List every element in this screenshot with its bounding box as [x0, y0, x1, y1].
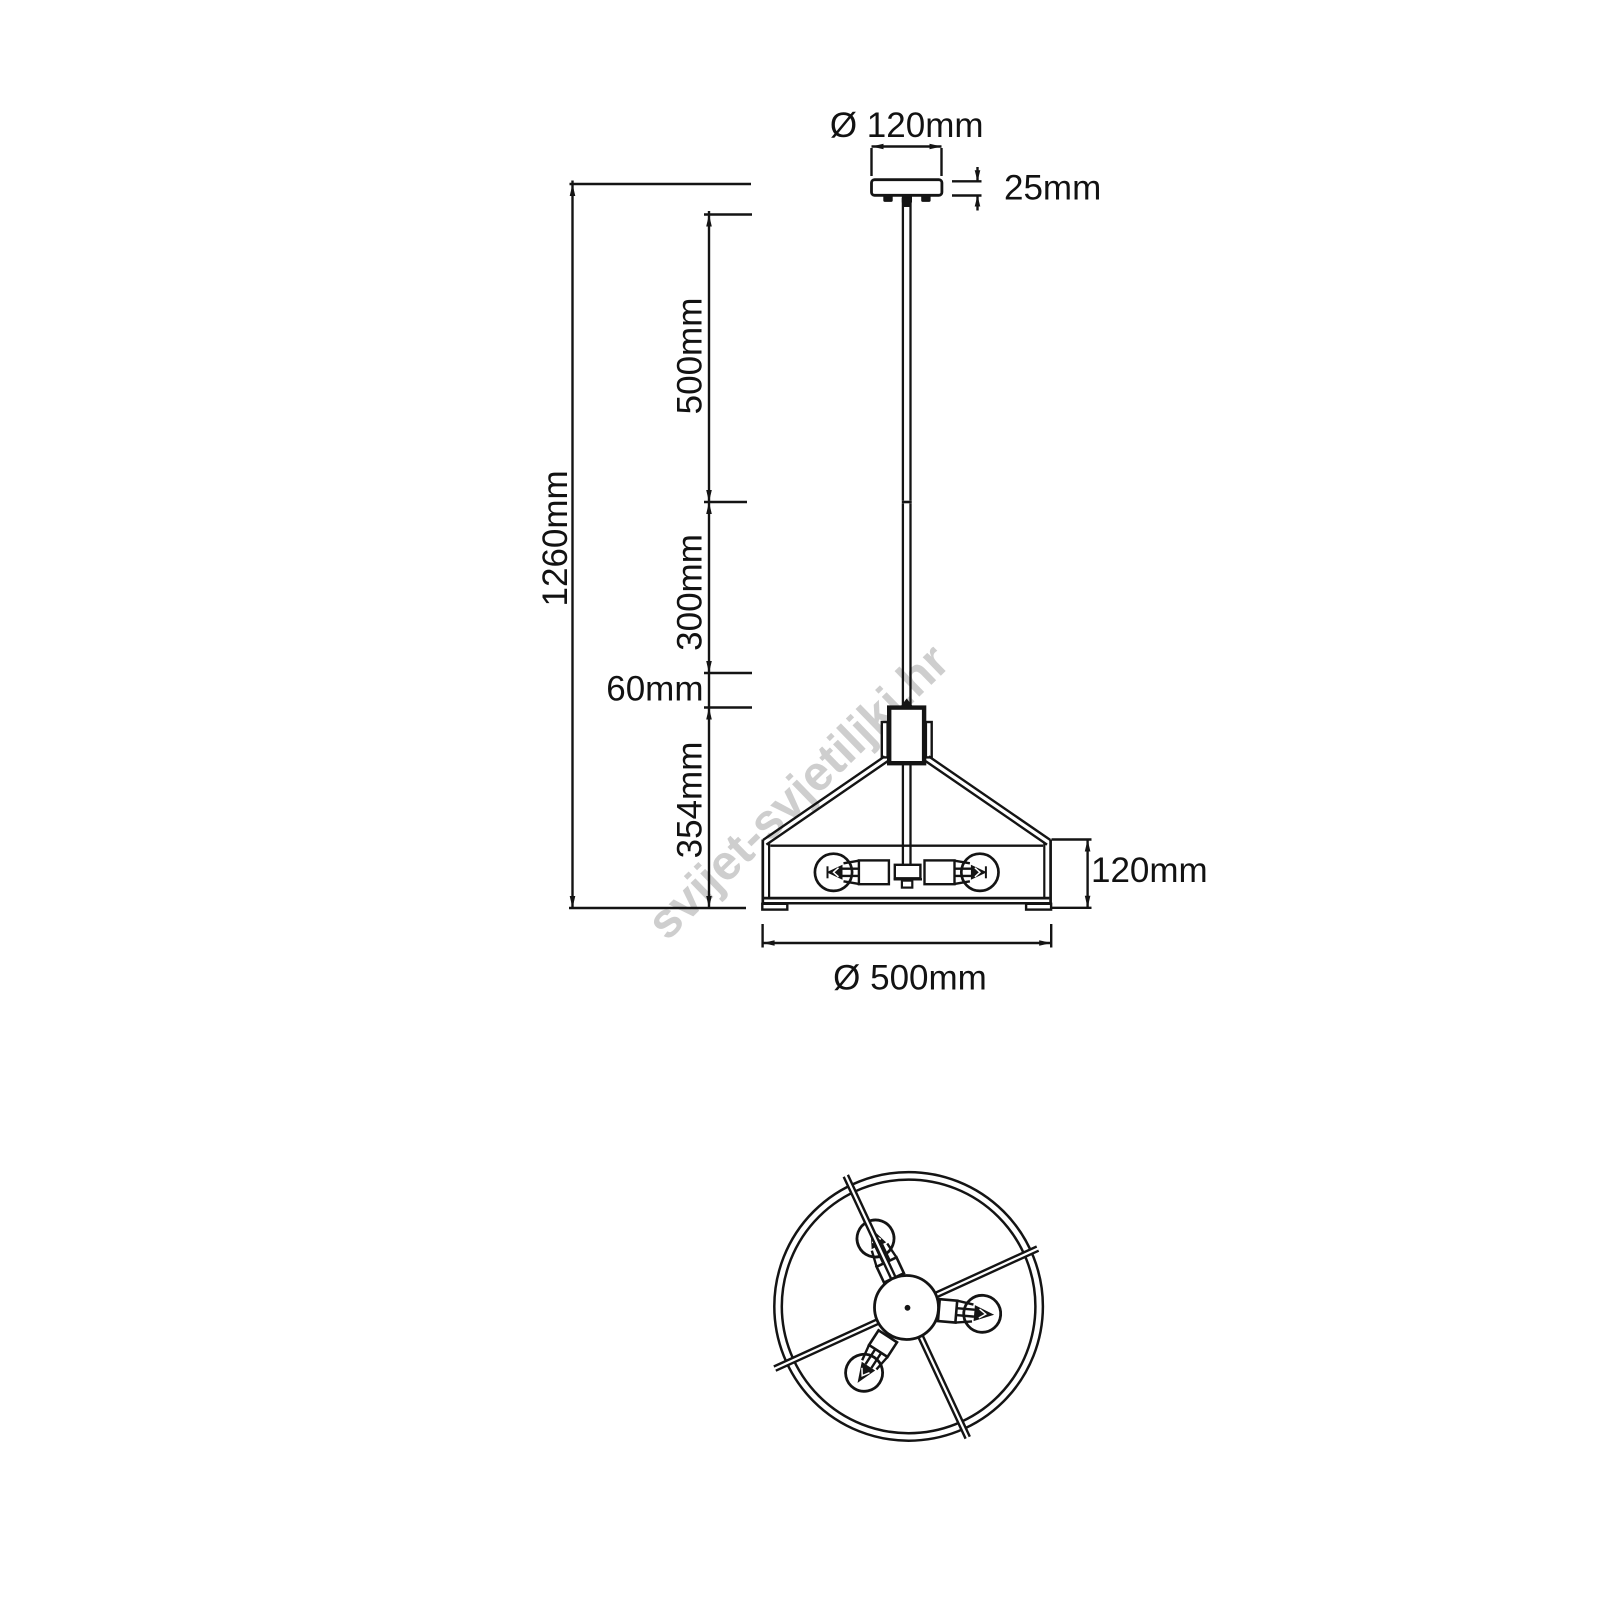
- svg-text:Ø 120mm: Ø 120mm: [830, 106, 984, 145]
- svg-text:60mm: 60mm: [606, 670, 703, 709]
- svg-text:500mm: 500mm: [671, 298, 710, 415]
- svg-text:354mm: 354mm: [671, 742, 710, 859]
- svg-text:120mm: 120mm: [1091, 851, 1208, 890]
- svg-text:1260mm: 1260mm: [536, 470, 575, 606]
- svg-text:25mm: 25mm: [1004, 169, 1101, 208]
- svg-text:300mm: 300mm: [671, 534, 710, 651]
- svg-text:Ø 500mm: Ø 500mm: [833, 959, 987, 998]
